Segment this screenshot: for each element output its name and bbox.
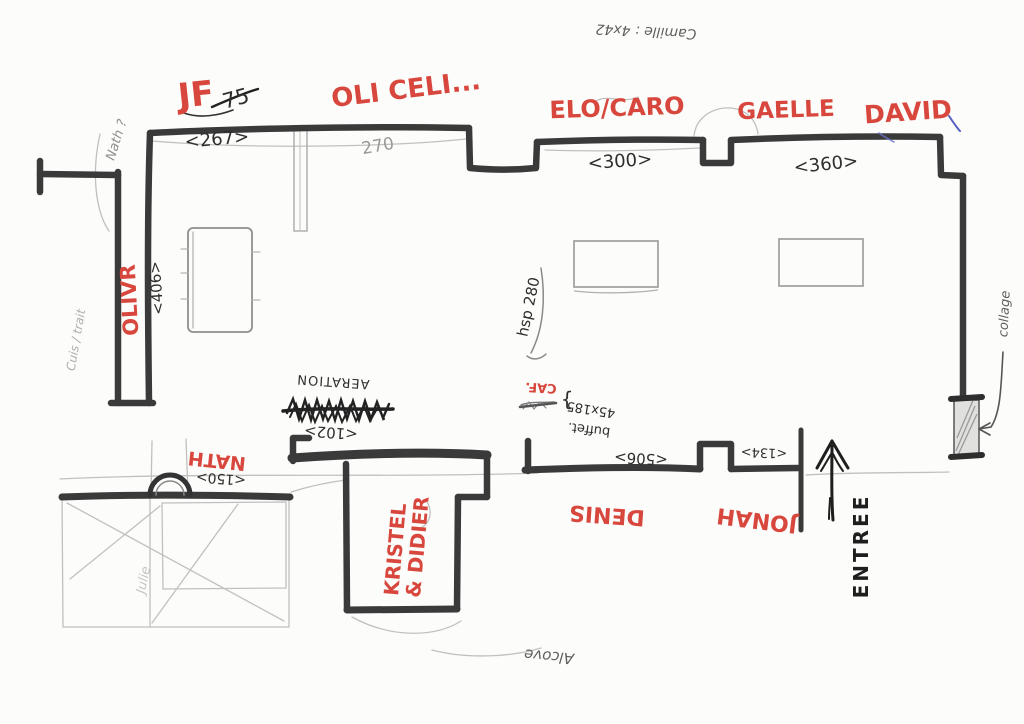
name-elo-caro: ELO/CARO (549, 94, 685, 123)
table-top-left (181, 228, 260, 332)
dim-150: <150> (195, 469, 246, 486)
floorplan-sketch: JF 75 OLI CELI... ELO/CARO GAELLE DAVID … (0, 0, 1024, 724)
name-kristel-didier: KRISTEL & DIDIER (381, 494, 433, 599)
table-right (779, 239, 863, 286)
crossed-out-word (520, 402, 556, 409)
pencil-guides (60, 97, 949, 656)
dim-300: <300> (587, 151, 653, 173)
pillar (294, 130, 307, 231)
window-radiator (951, 397, 982, 457)
walls (40, 127, 963, 610)
entrance-arrow (817, 441, 848, 520)
dim-102: <102> (304, 423, 359, 442)
dim-134: <134> (740, 445, 787, 460)
name-denis: DENIS (568, 500, 645, 527)
dim-506: <506> (614, 449, 668, 467)
name-jf: JF (176, 76, 215, 114)
aeration-hatch (283, 399, 393, 422)
label-entree: ENTREE (851, 494, 871, 599)
buffet-brace: } (560, 391, 573, 411)
table-middle (574, 241, 658, 293)
label-collage: collage (997, 290, 1012, 337)
name-olivr: OLIVR (118, 264, 143, 336)
name-gaelle: GAELLE (737, 98, 835, 124)
dim-406: <406> (148, 261, 167, 316)
name-david: DAVID (863, 96, 952, 127)
label-alcove: Alcove (523, 646, 574, 665)
collage-arrow (979, 352, 1003, 435)
label-cafe: CAF. (525, 380, 557, 395)
